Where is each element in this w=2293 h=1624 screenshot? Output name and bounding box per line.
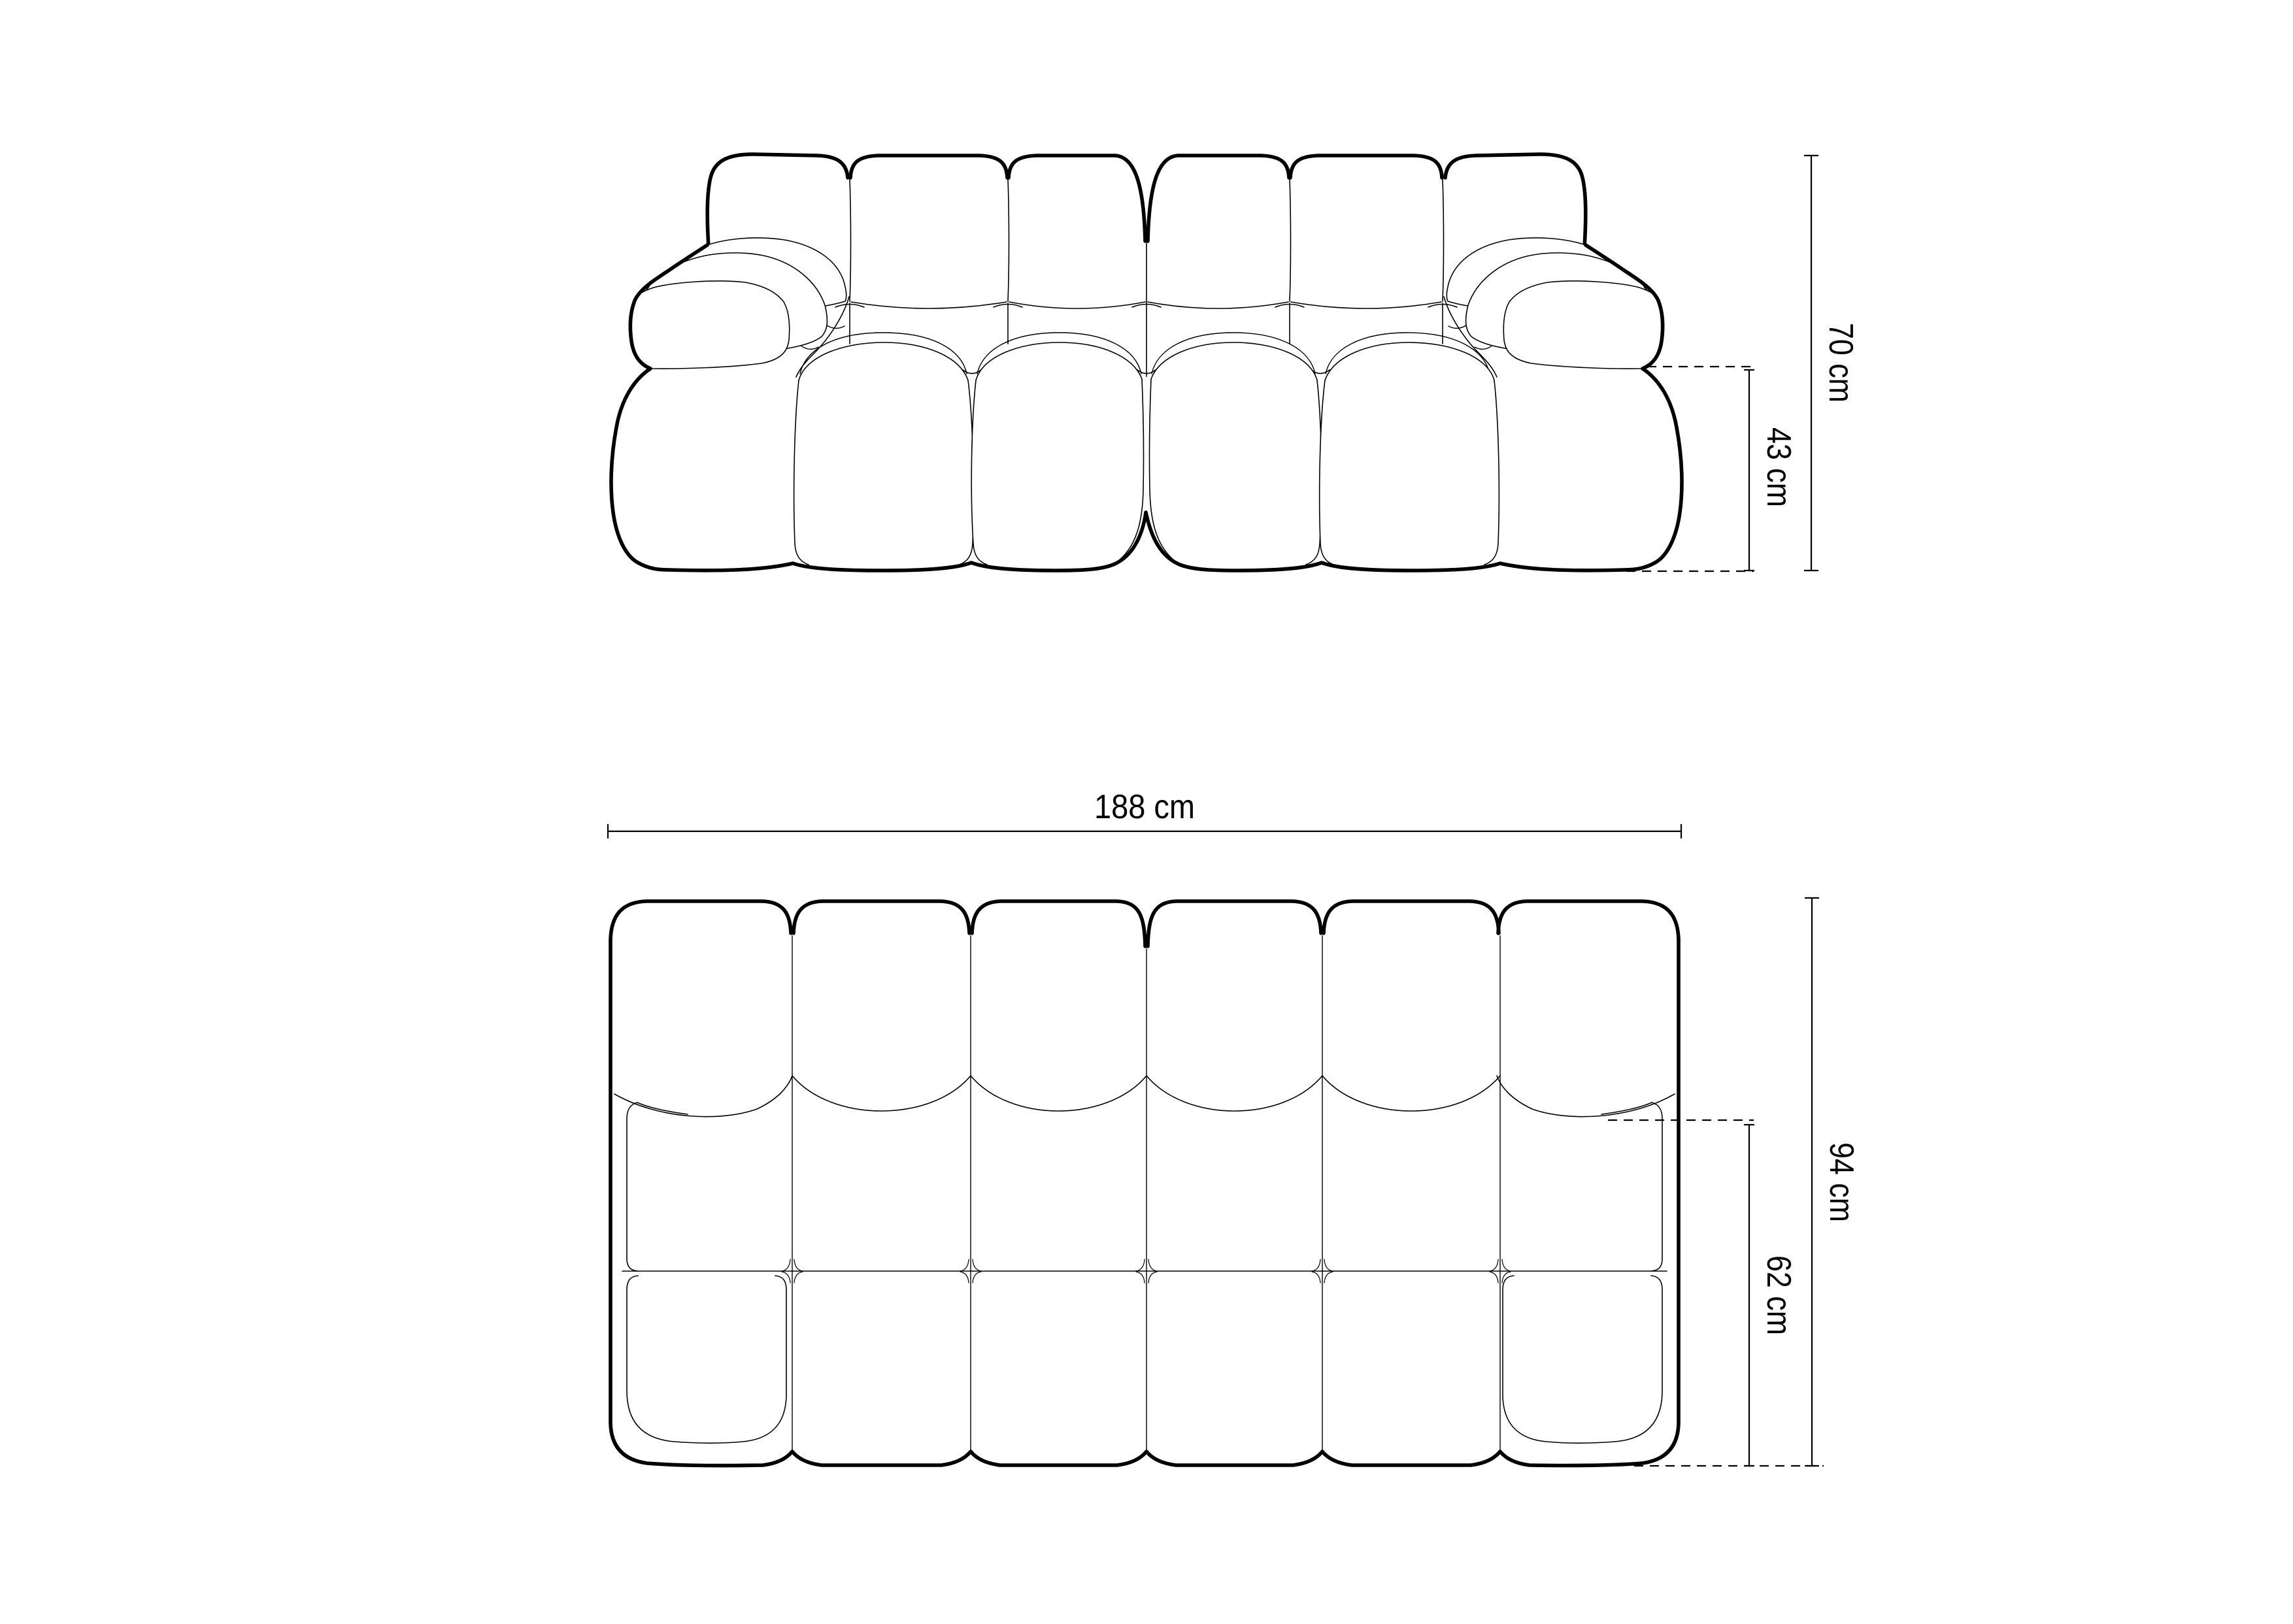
svg-text:43 cm: 43 cm (1760, 427, 1798, 507)
svg-text:94 cm: 94 cm (1822, 1142, 1860, 1222)
svg-text:62 cm: 62 cm (1760, 1255, 1798, 1335)
svg-text:70 cm: 70 cm (1822, 323, 1860, 403)
svg-text:188 cm: 188 cm (1094, 788, 1195, 826)
